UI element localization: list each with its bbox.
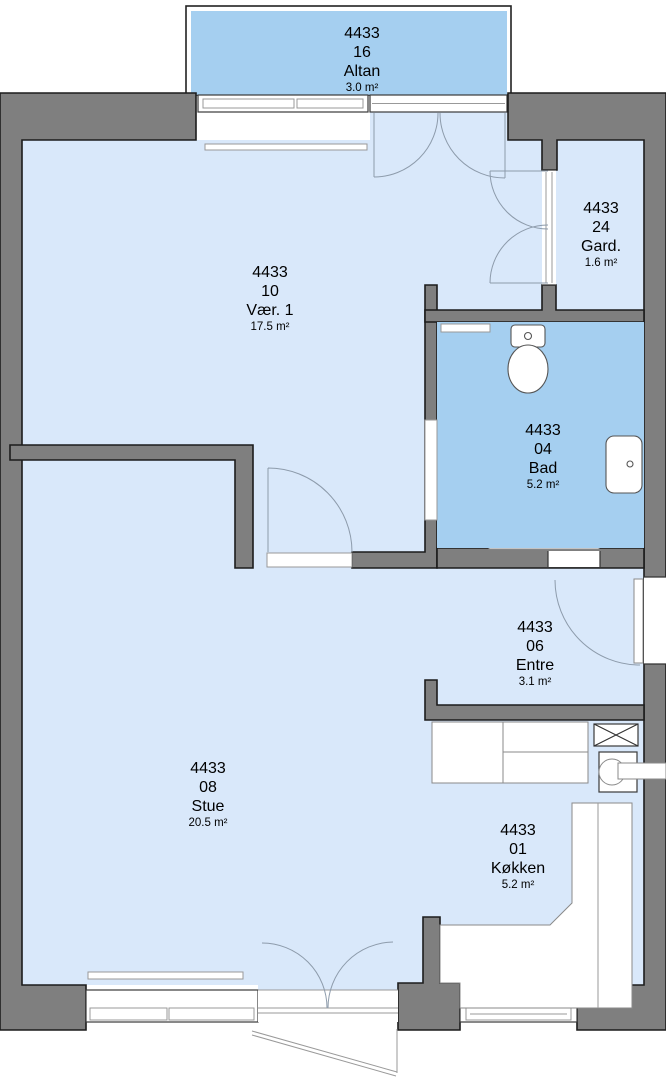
room-number: 01: [491, 840, 545, 859]
room-label-stue: 4433 08 Stue 20.5 m²: [189, 759, 228, 831]
washbasin-icon: [606, 436, 642, 493]
room-name: Altan: [344, 62, 380, 81]
room-apt: 4433: [246, 263, 293, 282]
room-label-gard: 4433 24 Gard. 1.6 m²: [581, 199, 621, 271]
room-area: 20.5 m²: [189, 816, 228, 831]
french-door-open-leaves: [252, 1029, 397, 1076]
vaer1-window-sill: [205, 144, 367, 150]
room-number: 06: [516, 637, 554, 656]
room-label-altan: 4433 16 Altan 3.0 m²: [344, 24, 380, 96]
room-area: 1.6 m²: [581, 256, 621, 271]
gard-doorway: [542, 170, 556, 285]
room-number: 04: [525, 440, 561, 459]
room-number: 16: [344, 43, 380, 62]
room-name: Bad: [525, 459, 561, 478]
cabinet-2: [503, 722, 588, 752]
room-label-bad: 4433 04 Bad 5.2 m²: [525, 421, 561, 493]
room-name: Køkken: [491, 859, 545, 878]
vaer1-stue-doorway: [267, 553, 352, 567]
utility-pipe: [618, 763, 666, 779]
room-area: 3.0 m²: [344, 81, 380, 96]
cabinet-3: [503, 752, 588, 783]
room-number: 10: [246, 282, 293, 301]
room-apt: 4433: [344, 24, 380, 43]
room-apt: 4433: [516, 618, 554, 637]
room-label-koekken: 4433 01 Køkken 5.2 m²: [491, 821, 545, 893]
entrance-door-leaf: [634, 579, 643, 663]
room-label-vaer1: 4433 10 Vær. 1 17.5 m²: [246, 263, 293, 335]
room-area: 17.5 m²: [246, 320, 293, 335]
room-label-entre: 4433 06 Entre 3.1 m²: [516, 618, 554, 690]
toilet-icon: [508, 325, 548, 393]
room-name: Stue: [189, 797, 228, 816]
floorplan-canvas: [0, 0, 666, 1080]
room-apt: 4433: [581, 199, 621, 218]
balcony-door-niche: [370, 112, 507, 142]
room-apt: 4433: [189, 759, 228, 778]
stue-window-sill: [88, 972, 243, 979]
room-apt: 4433: [525, 421, 561, 440]
entrance-doorway: [644, 577, 666, 664]
room-number: 24: [581, 218, 621, 237]
room-name: Gard.: [581, 237, 621, 256]
room-area: 5.2 m²: [525, 478, 561, 493]
room-number: 08: [189, 778, 228, 797]
wall-bad-bottom: [437, 548, 644, 568]
bad-doorway: [548, 551, 600, 567]
room-area: 5.2 m²: [491, 878, 545, 893]
bad-wall-panel: [425, 420, 437, 520]
floorplan: 4433 16 Altan 3.0 m² 4433 10 Vær. 1 17.5…: [0, 0, 666, 1080]
bad-radiator: [441, 324, 490, 332]
room-name: Entre: [516, 656, 554, 675]
room-apt: 4433: [491, 821, 545, 840]
room-area: 3.1 m²: [516, 675, 554, 690]
room-name: Vær. 1: [246, 301, 293, 320]
cabinet-1: [432, 722, 503, 783]
